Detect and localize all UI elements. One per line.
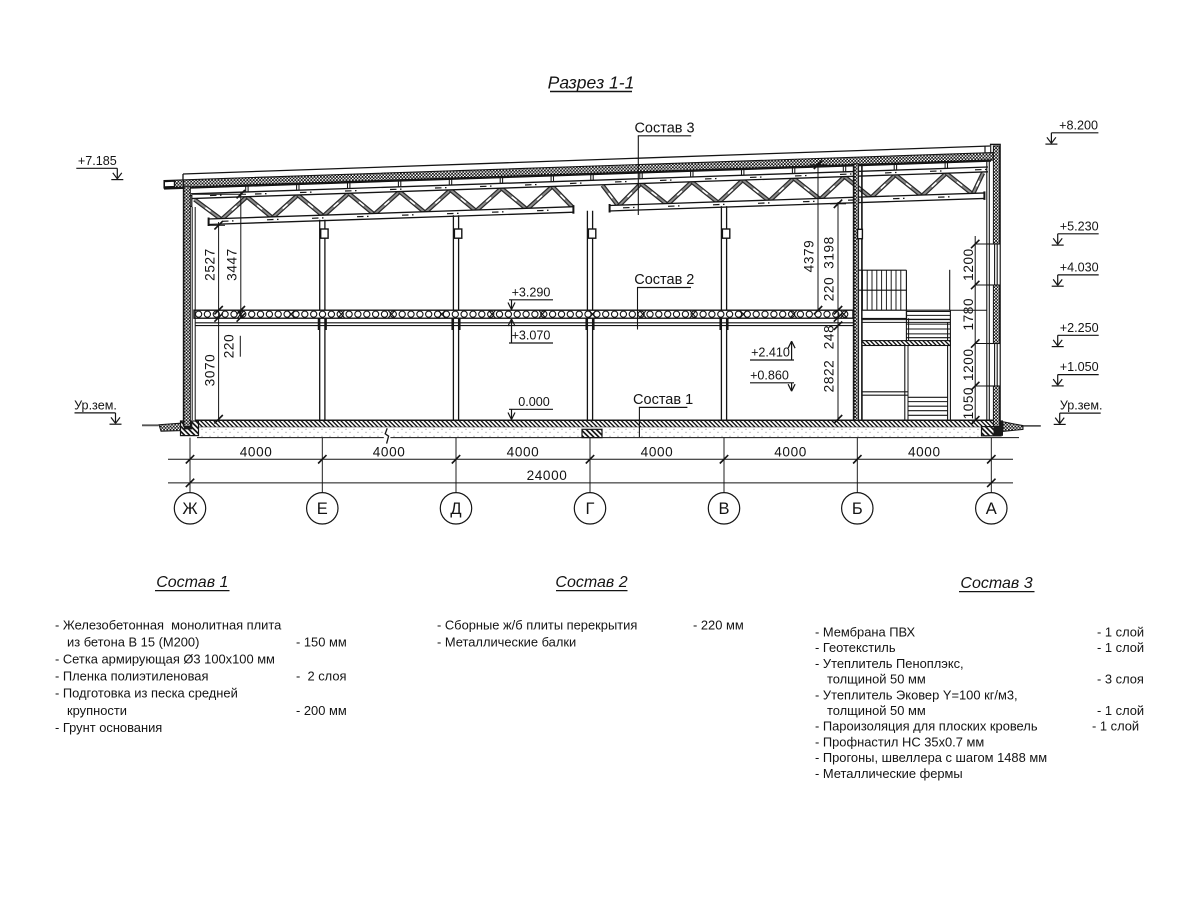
svg-text:220: 220 <box>822 277 837 301</box>
svg-text:4000: 4000 <box>774 444 807 459</box>
svg-text:1780: 1780 <box>961 298 976 331</box>
svg-text:4000: 4000 <box>240 444 273 459</box>
svg-text:- Грунт основания: - Грунт основания <box>55 720 162 735</box>
svg-text:+8.200: +8.200 <box>1059 118 1098 132</box>
svg-text:- 1 слой: - 1 слой <box>1092 719 1139 734</box>
svg-text:3070: 3070 <box>203 354 218 387</box>
svg-text:+4.030: +4.030 <box>1060 260 1099 274</box>
svg-text:1200: 1200 <box>961 248 976 281</box>
svg-text:Состав 1: Состав 1 <box>156 574 228 591</box>
svg-text:+3.290: +3.290 <box>512 285 551 299</box>
svg-text:1200: 1200 <box>961 348 976 381</box>
svg-text:- 200 мм: - 200 мм <box>296 703 347 718</box>
svg-text:- Пленка полиэтиленовая: - Пленка полиэтиленовая <box>55 669 208 684</box>
svg-text:- 1 слой: - 1 слой <box>1097 703 1144 718</box>
svg-text:Разрез 1-1: Разрез 1-1 <box>548 73 635 93</box>
svg-text:3447: 3447 <box>225 248 240 281</box>
svg-text:Б: Б <box>852 500 863 518</box>
svg-text:Состав 3: Состав 3 <box>960 575 1032 592</box>
svg-text:- 150 мм: - 150 мм <box>296 634 347 649</box>
svg-text:+2.410: +2.410 <box>751 346 790 360</box>
svg-text:А: А <box>986 500 997 518</box>
svg-text:- Мембрана ПВХ: - Мембрана ПВХ <box>815 625 916 640</box>
svg-text:1050: 1050 <box>961 387 976 420</box>
svg-text:- Железобетонная монолитная п: - Железобетонная монолитная плита <box>55 617 282 632</box>
svg-text:Ур.зем.: Ур.зем. <box>74 398 117 412</box>
svg-text:+0.860: +0.860 <box>750 368 789 382</box>
svg-text:4000: 4000 <box>641 444 674 459</box>
svg-text:24000: 24000 <box>527 468 568 483</box>
svg-text:+2.250: +2.250 <box>1060 321 1099 335</box>
svg-text:- Металлические балки: - Металлические балки <box>437 634 576 649</box>
svg-text:- 220 мм: - 220 мм <box>693 617 744 632</box>
svg-text:- Профнастил НС 35х0.7 мм: - Профнастил НС 35х0.7 мм <box>815 734 984 749</box>
svg-text:из бетона В 15 (М200): из бетона В 15 (М200) <box>67 634 199 649</box>
svg-text:толщиной 50 мм: толщиной 50 мм <box>827 703 926 718</box>
svg-text:- Металлические фермы: - Металлические фермы <box>815 766 963 781</box>
svg-text:Д: Д <box>450 500 461 518</box>
svg-text:Состав 2: Состав 2 <box>555 574 627 591</box>
svg-text:- 3 слоя: - 3 слоя <box>1097 672 1144 687</box>
svg-text:- 2 слоя: - 2 слоя <box>296 669 346 684</box>
svg-text:Г: Г <box>586 500 595 518</box>
svg-text:- 1 слой: - 1 слой <box>1097 640 1144 655</box>
svg-text:+3.070: +3.070 <box>512 329 551 343</box>
svg-text:4000: 4000 <box>373 444 406 459</box>
svg-text:- Пароизоляция для плоских кро: - Пароизоляция для плоских кровель <box>815 719 1038 734</box>
svg-text:2822: 2822 <box>822 360 837 393</box>
svg-text:Ж: Ж <box>182 500 198 518</box>
svg-text:- Утеплитель Эковер Y=100 кг/м: - Утеплитель Эковер Y=100 кг/м3, <box>815 687 1018 702</box>
svg-text:+1.050: +1.050 <box>1060 360 1099 374</box>
svg-text:- 1 слой: - 1 слой <box>1097 625 1144 640</box>
svg-text:220: 220 <box>222 334 237 358</box>
svg-text:- Подготовка из песка средней: - Подготовка из песка средней <box>55 686 238 701</box>
svg-text:Состав 1: Состав 1 <box>633 392 693 408</box>
svg-text:+7.185: +7.185 <box>78 154 117 168</box>
svg-text:толщиной 50 мм: толщиной 50 мм <box>827 672 926 687</box>
svg-text:Е: Е <box>317 500 328 518</box>
svg-text:4379: 4379 <box>802 240 817 273</box>
svg-text:Ур.зем.: Ур.зем. <box>1060 399 1103 413</box>
svg-text:- Сборные ж/б плиты перекрытия: - Сборные ж/б плиты перекрытия <box>437 617 637 632</box>
svg-text:+5.230: +5.230 <box>1060 219 1099 233</box>
svg-text:- Прогоны, швеллера с шагом 14: - Прогоны, швеллера с шагом 1488 мм <box>815 750 1047 765</box>
svg-text:- Сетка армирующая Ø3 100х100: - Сетка армирующая Ø3 100х100 мм <box>55 652 275 667</box>
svg-text:248: 248 <box>822 325 837 349</box>
svg-text:В: В <box>718 500 729 518</box>
svg-text:- Утеплитель Пеноплэкс,: - Утеплитель Пеноплэкс, <box>815 656 964 671</box>
svg-text:4000: 4000 <box>507 444 540 459</box>
svg-text:2527: 2527 <box>203 248 218 281</box>
svg-text:Состав 2: Состав 2 <box>634 272 694 288</box>
svg-text:- Геотекстиль: - Геотекстиль <box>815 640 896 655</box>
svg-text:3198: 3198 <box>822 236 837 269</box>
svg-text:4000: 4000 <box>908 444 941 459</box>
svg-text:Состав 3: Состав 3 <box>634 120 694 136</box>
svg-text:0.000: 0.000 <box>518 395 550 409</box>
svg-text:крупности: крупности <box>67 703 127 718</box>
